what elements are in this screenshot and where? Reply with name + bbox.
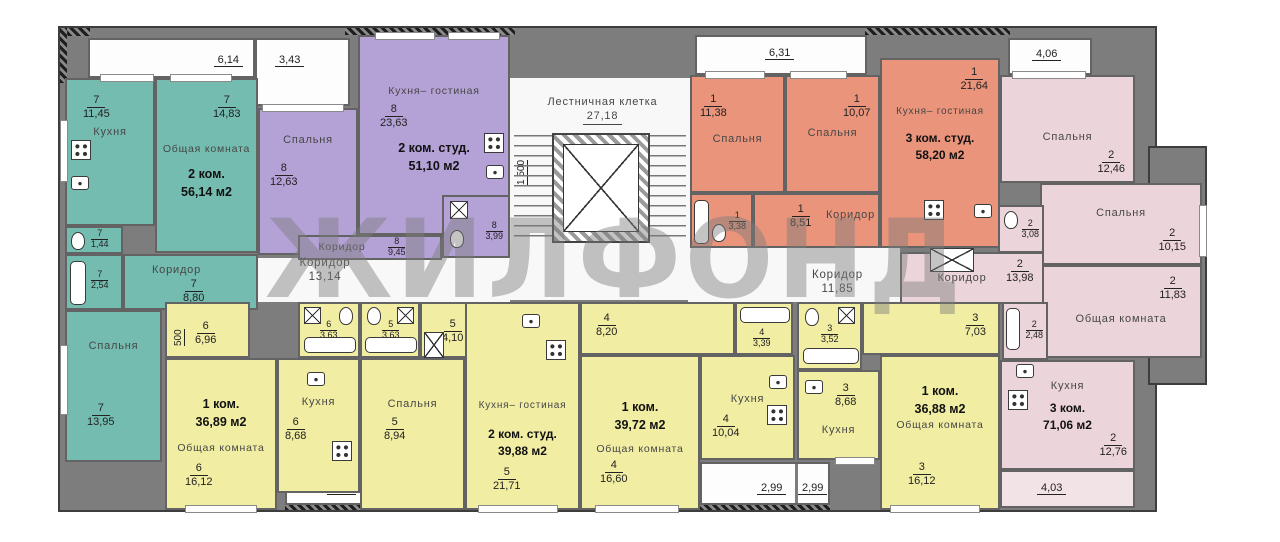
toilet-icon bbox=[339, 307, 353, 325]
room-name: Общая комната bbox=[167, 442, 275, 454]
window bbox=[185, 505, 257, 513]
room-name: Спальня bbox=[260, 134, 356, 146]
room-apt3-bath: 33,52 bbox=[797, 302, 862, 370]
room-apt2-kitchen: Кухня 3 ком.71,06 м2 212,76 bbox=[1000, 360, 1135, 470]
room-apt6-hall: 66,96 500 bbox=[165, 302, 250, 358]
area-frac: 410,04 bbox=[712, 413, 740, 440]
area-frac: 711,45 bbox=[83, 94, 110, 121]
stove-icon bbox=[1008, 390, 1028, 410]
area-frac: 110,07 bbox=[843, 93, 871, 120]
room-apt3-hall: 37,03 bbox=[862, 302, 1000, 355]
stove-icon bbox=[71, 140, 91, 160]
common-corridor-left-label: Коридор13,14 bbox=[290, 256, 360, 285]
area-frac: 212,76 bbox=[1099, 432, 1127, 459]
area-frac: 213,98 bbox=[1006, 258, 1034, 285]
sink-icon bbox=[974, 204, 992, 218]
floor-plan: 6,14 3,43 6,31 4,06 2,99 2,99 2,99 2,99 … bbox=[0, 0, 1280, 542]
room-name: Кухня bbox=[799, 424, 878, 436]
balcony-pink: 4,03 bbox=[1000, 470, 1135, 508]
area-frac: 616,12 bbox=[185, 462, 213, 489]
room-apt4-kitchen: Кухня 410,04 bbox=[700, 355, 795, 460]
toilet-icon bbox=[71, 232, 85, 250]
stove-icon bbox=[924, 200, 944, 220]
room-apt1-corridor: 18,51 Коридор bbox=[753, 193, 880, 248]
outer-wall-hatch bbox=[865, 28, 1010, 35]
room-apt7-bath: 72,54 bbox=[65, 254, 123, 310]
window bbox=[100, 74, 154, 82]
bathtub-icon bbox=[803, 348, 859, 364]
toilet-icon bbox=[712, 224, 726, 242]
stove-icon bbox=[484, 133, 504, 153]
washing-machine-icon bbox=[450, 201, 468, 219]
common-corridor-right-label: Коридор11,85 bbox=[800, 268, 875, 297]
vertical-dimension-label: 500 bbox=[173, 329, 185, 346]
sink-icon bbox=[486, 165, 504, 179]
stove-icon bbox=[332, 441, 352, 461]
room-name: Коридор bbox=[111, 264, 242, 276]
area-frac: 83,99 bbox=[485, 221, 503, 242]
room-name: Коридор bbox=[789, 209, 912, 221]
window bbox=[705, 71, 765, 79]
room-name: Кухня– гостиная bbox=[467, 400, 578, 411]
stove-icon bbox=[767, 405, 787, 425]
area-frac: 38,68 bbox=[835, 382, 856, 409]
window bbox=[835, 457, 875, 465]
room-apt6-bath: 63,63 bbox=[298, 302, 360, 358]
dimension-label: 4,03 bbox=[1037, 482, 1066, 495]
window bbox=[1199, 205, 1207, 257]
room-apt7-bedroom: Спальня 713,95 bbox=[65, 310, 162, 462]
area-frac: 13,38 bbox=[728, 211, 746, 232]
window bbox=[448, 32, 500, 40]
room-name: Спальня bbox=[692, 133, 783, 145]
outer-wall-hatch bbox=[60, 28, 67, 83]
window bbox=[595, 505, 679, 513]
room-apt1-bath: 13,38 bbox=[690, 193, 753, 248]
area-frac: 66,96 bbox=[195, 320, 216, 347]
apartment-total-label: 1 ком.36,89 м2 bbox=[167, 396, 275, 431]
area-frac: 812,63 bbox=[270, 162, 298, 189]
storage-icon bbox=[930, 248, 974, 272]
area-frac: 68,68 bbox=[285, 416, 306, 443]
room-apt7-kitchen: 711,45 Кухня bbox=[65, 78, 155, 226]
room-name: Кухня– гостиная bbox=[360, 85, 508, 97]
window bbox=[1012, 71, 1086, 79]
apartment-total-label: 1 ком.36,88 м2 bbox=[882, 383, 998, 418]
area-frac: 713,95 bbox=[87, 402, 115, 429]
area-frac: 210,15 bbox=[1158, 227, 1186, 254]
toilet-icon bbox=[1004, 211, 1018, 229]
dimension-label: 6,31 bbox=[765, 47, 794, 60]
stove-icon bbox=[546, 340, 566, 360]
elevator-cab-icon bbox=[563, 144, 639, 232]
room-apt5-kitchen-living: Кухня– гостиная 2 ком. студ.39,88 м2 521… bbox=[465, 302, 580, 510]
room-apt1-bedroom2: 110,07 Спальня bbox=[785, 75, 880, 193]
sink-icon bbox=[522, 314, 540, 328]
window bbox=[375, 32, 435, 40]
area-frac: 22,48 bbox=[1025, 320, 1043, 341]
dimension-label: 4,06 bbox=[1032, 48, 1061, 61]
dimension-label: 2,99 bbox=[757, 482, 786, 495]
window bbox=[60, 345, 68, 415]
area-frac: 89,45 bbox=[388, 237, 406, 258]
bathtub-icon bbox=[1006, 308, 1020, 350]
room-apt4-living: 1 ком.39,72 м2 Общая комната 416,60 bbox=[580, 355, 700, 510]
loggia-orange: 6,31 bbox=[695, 35, 867, 75]
window bbox=[790, 71, 847, 79]
area-frac: 48,20 bbox=[596, 312, 617, 339]
room-name: Кухня– гостиная bbox=[882, 106, 998, 117]
dimension-label: 2,99 bbox=[798, 482, 827, 495]
sink-icon bbox=[307, 372, 325, 386]
loggia-teal: 6,14 bbox=[88, 38, 255, 78]
room-apt6-living: 1 ком.36,89 м2 Общая комната 616,12 bbox=[165, 358, 277, 510]
room-apt8-bedroom: Спальня 812,63 bbox=[258, 108, 358, 255]
room-name: Кухня bbox=[67, 126, 153, 138]
elevator-shaft bbox=[552, 133, 650, 243]
room-apt3-kitchen: 38,68 Кухня bbox=[797, 370, 880, 460]
room-name: Спальня bbox=[787, 127, 878, 139]
room-apt5-bath: 53,63 bbox=[360, 302, 420, 358]
room-name: Кухня bbox=[279, 396, 358, 408]
room-name: Кухня bbox=[702, 393, 793, 405]
window bbox=[60, 120, 68, 182]
room-apt1-bedroom1: 111,38 Спальня bbox=[690, 75, 785, 193]
washing-machine-icon bbox=[304, 307, 321, 324]
area-frac: 416,60 bbox=[600, 459, 628, 486]
room-apt3-living: 1 ком.36,88 м2 Общая комната 316,12 bbox=[880, 355, 1000, 510]
area-frac: 316,12 bbox=[908, 461, 936, 488]
room-apt4-bath: 43,39 bbox=[735, 302, 793, 355]
area-frac: 714,83 bbox=[213, 94, 241, 121]
loggia-pink: 4,06 bbox=[1008, 38, 1092, 75]
room-apt2-bath: 22,48 bbox=[1002, 302, 1048, 360]
bathtub-icon bbox=[694, 200, 709, 244]
area-frac: 54,10 bbox=[442, 318, 463, 345]
area-frac: 23,08 bbox=[1021, 219, 1039, 240]
area-frac: 212,46 bbox=[1097, 149, 1125, 176]
room-apt2-living: 211,83 Общая комната bbox=[1040, 265, 1202, 358]
apartment-total-label: 2 ком. студ.39,88 м2 bbox=[467, 426, 578, 460]
room-apt6-kitchen: Кухня 68,68 bbox=[277, 358, 360, 493]
room-name: Общая комната bbox=[157, 143, 256, 155]
washing-machine-icon bbox=[424, 332, 444, 358]
room-name: Общая комната bbox=[582, 443, 698, 455]
sink-icon bbox=[71, 176, 89, 190]
loggia-purple: 3,43 bbox=[255, 38, 350, 106]
room-apt4-hall: 48,20 bbox=[580, 302, 735, 355]
room-name: Спальня bbox=[1042, 207, 1200, 219]
room-apt7-living: 714,83 Общая комната 2 ком.56,14 м2 bbox=[155, 78, 258, 253]
room-name: Спальня bbox=[1002, 131, 1133, 143]
area-frac: 823,63 bbox=[380, 103, 408, 130]
toilet-icon bbox=[450, 230, 464, 248]
area-frac: 121,64 bbox=[960, 66, 988, 93]
dimension-label: 3,43 bbox=[275, 54, 304, 67]
window bbox=[262, 104, 344, 112]
washing-machine-icon bbox=[397, 307, 414, 324]
area-frac: 71,44 bbox=[91, 229, 109, 250]
dimension-label: 6,14 bbox=[214, 54, 243, 67]
room-apt5-bedroom: Спальня 58,94 bbox=[360, 358, 465, 510]
stairwell-label: Лестничная клетка 27,18 bbox=[520, 95, 685, 125]
apartment-total-label: 1 ком.39,72 м2 bbox=[582, 399, 698, 434]
area-frac: 58,94 bbox=[384, 416, 405, 443]
room-apt2-bedroom2: Спальня 210,15 bbox=[1040, 183, 1202, 265]
area-frac: 521,71 bbox=[493, 466, 521, 493]
toilet-icon bbox=[367, 307, 381, 325]
area-frac: 78,80 bbox=[183, 278, 204, 305]
bathtub-icon bbox=[740, 307, 790, 323]
room-name: Спальня bbox=[362, 398, 463, 410]
balcony-b: 2,99 2,99 bbox=[700, 462, 830, 505]
bathtub-icon bbox=[365, 337, 417, 353]
window bbox=[170, 74, 232, 82]
area-frac: 33,52 bbox=[821, 324, 839, 345]
room-apt8-bath: 83,99 bbox=[442, 195, 510, 258]
bathtub-icon bbox=[70, 261, 86, 305]
apartment-total-label: 3 ком. студ.58,20 м2 bbox=[882, 130, 998, 164]
room-name: Общая комната bbox=[1042, 313, 1200, 325]
area-frac: 43,39 bbox=[753, 328, 771, 349]
area-frac: 211,83 bbox=[1159, 275, 1186, 302]
window bbox=[890, 505, 980, 513]
stair-flight-right bbox=[648, 135, 686, 239]
room-apt2-bedroom1: Спальня 212,46 bbox=[1000, 75, 1135, 183]
sink-icon bbox=[769, 375, 787, 389]
area-frac: 72,54 bbox=[91, 270, 109, 291]
washing-machine-icon bbox=[838, 307, 855, 324]
toilet-icon bbox=[805, 308, 819, 326]
apartment-total-label: 2 ком.56,14 м2 bbox=[157, 166, 256, 201]
window bbox=[478, 505, 558, 513]
sink-icon bbox=[1016, 364, 1034, 378]
stair-flight-left bbox=[514, 135, 552, 239]
bathtub-icon bbox=[304, 337, 356, 353]
room-name: Спальня bbox=[67, 340, 160, 352]
sink-icon bbox=[805, 380, 823, 394]
room-apt7-wc: 71,44 bbox=[65, 226, 123, 254]
room-name: Общая комната bbox=[882, 419, 998, 431]
area-frac: 111,38 bbox=[700, 93, 727, 120]
area-frac: 37,03 bbox=[965, 312, 986, 339]
room-apt2-wc: 23,08 bbox=[998, 205, 1044, 253]
room-apt2-corridor: Коридор 213,98 bbox=[900, 252, 1044, 304]
